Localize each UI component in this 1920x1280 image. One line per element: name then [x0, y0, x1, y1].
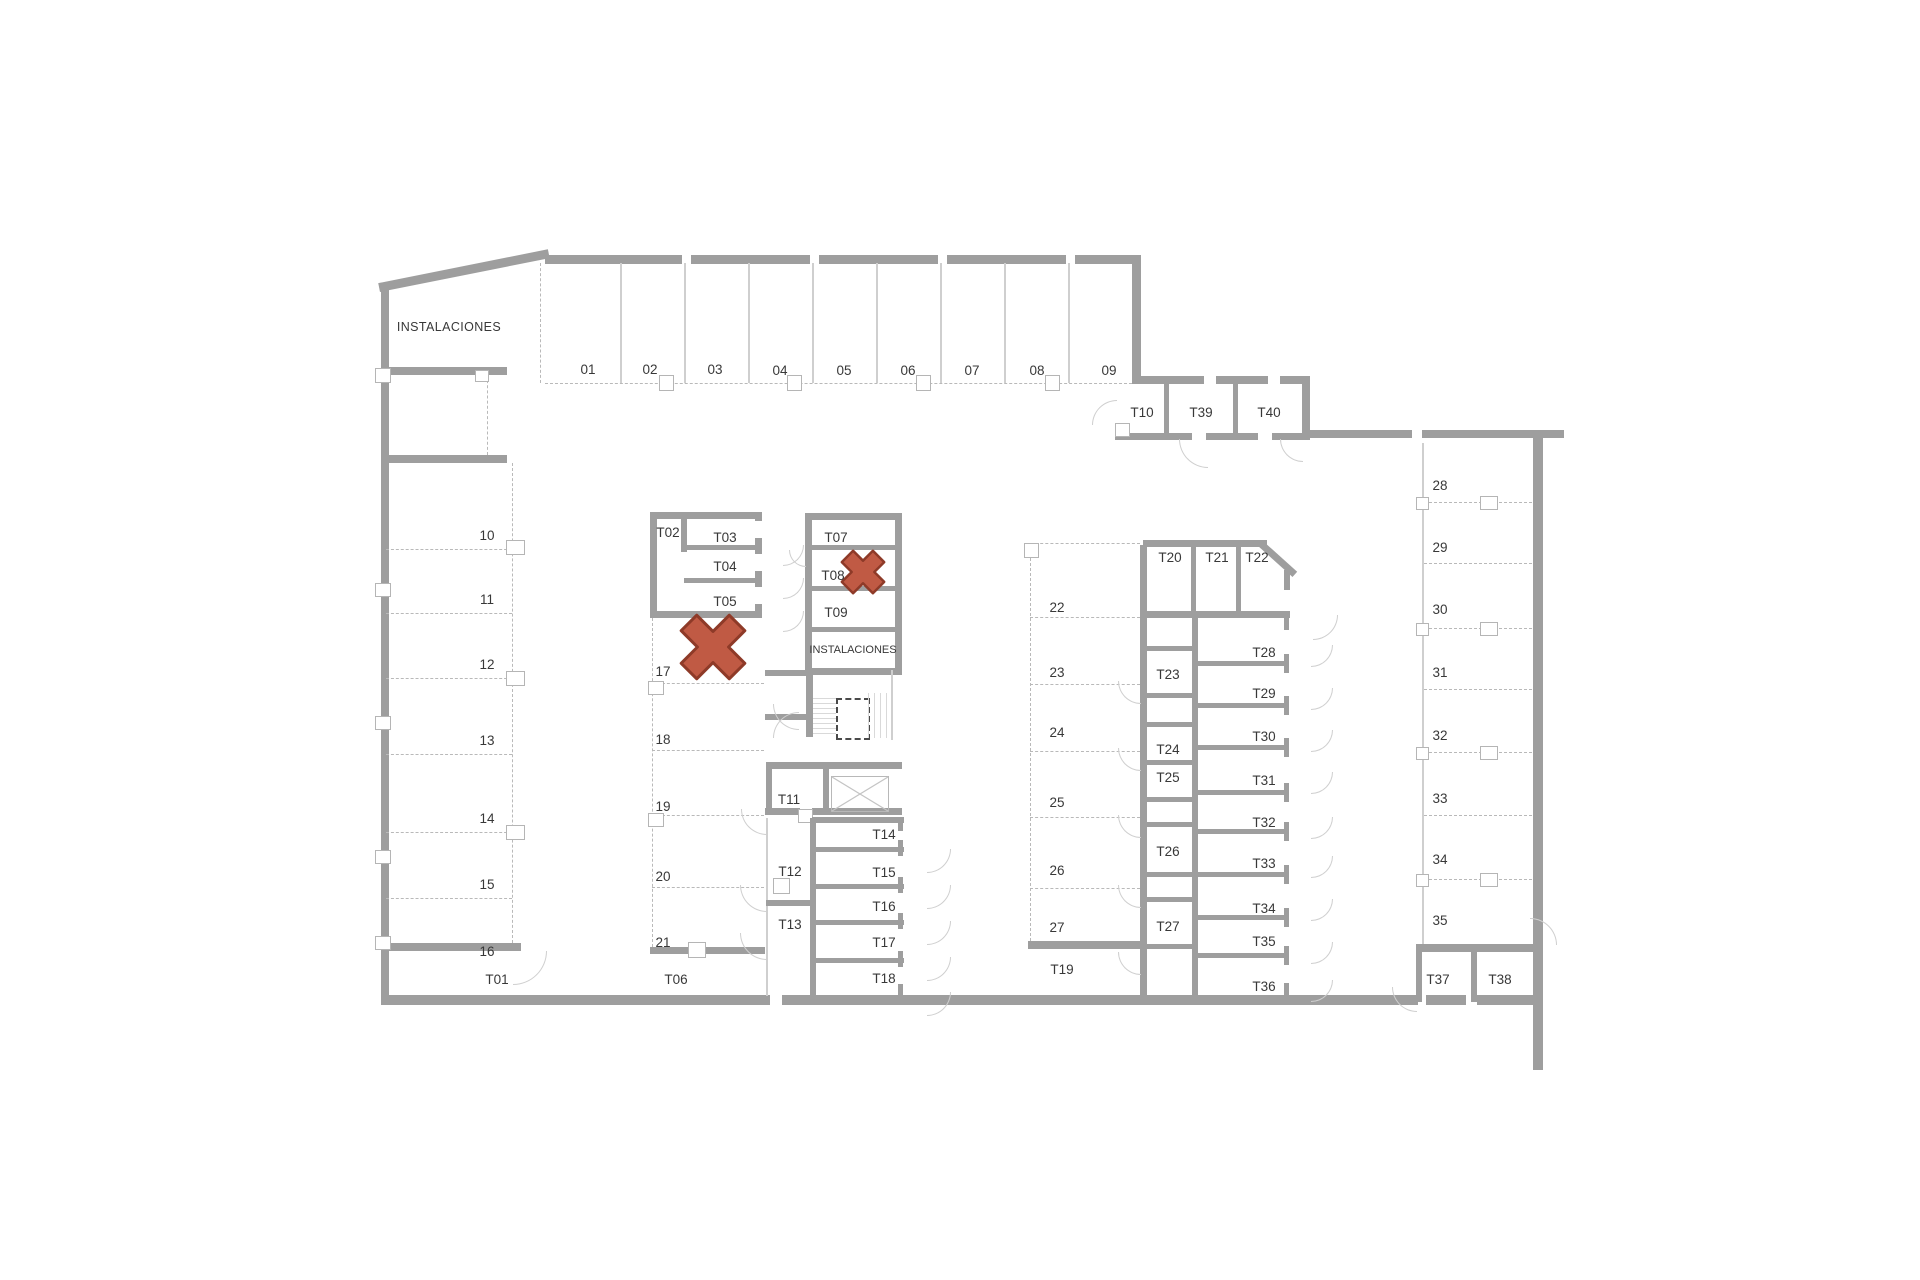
- partition-line: [891, 670, 893, 740]
- space-label-31: 31: [1410, 665, 1470, 681]
- dashed-boundary: [1424, 879, 1532, 880]
- storage-label-T04: T04: [695, 559, 755, 575]
- space-label-10: 10: [457, 528, 517, 544]
- storage-label-T02: T02: [638, 525, 698, 541]
- dashed-boundary: [540, 263, 541, 383]
- wall-segment: [766, 762, 902, 769]
- door-arc: [1179, 439, 1208, 468]
- wall-segment: [816, 958, 904, 963]
- wall-segment: [1028, 941, 1147, 949]
- door-symbol: [648, 813, 664, 827]
- wall-segment: [1143, 540, 1267, 547]
- wall-segment: [1198, 872, 1286, 877]
- wall-segment: [381, 455, 507, 463]
- space-label-04: 04: [750, 363, 810, 379]
- space-label-17: 17: [633, 664, 693, 680]
- space-label-09: 09: [1079, 363, 1139, 379]
- storage-label-T05: T05: [695, 594, 755, 610]
- wall-segment: [766, 900, 814, 906]
- space-label-23: 23: [1027, 665, 1087, 681]
- space-label-30: 30: [1410, 602, 1470, 618]
- storage-label-T14: T14: [854, 827, 914, 843]
- wall-gap: [755, 521, 762, 538]
- door-arc: [740, 885, 767, 912]
- space-label-21: 21: [633, 935, 693, 951]
- storage-label-T17: T17: [854, 935, 914, 951]
- storage-label-T27: T27: [1138, 919, 1198, 935]
- door-arc: [1280, 439, 1303, 462]
- storage-label-T25: T25: [1138, 770, 1198, 786]
- space-label-33: 33: [1410, 791, 1470, 807]
- storage-label-T28: T28: [1234, 645, 1294, 661]
- storage-label-T18: T18: [854, 971, 914, 987]
- door-arc: [1311, 942, 1333, 964]
- space-label-07: 07: [942, 363, 1002, 379]
- staircase-treads: [813, 698, 836, 738]
- space-label-18: 18: [633, 732, 693, 748]
- storage-label-T19: T19: [1032, 962, 1092, 978]
- storage-label-T10: T10: [1112, 405, 1172, 421]
- wall-segment: [1145, 760, 1195, 765]
- dashed-boundary: [386, 613, 512, 614]
- door-arc: [927, 885, 951, 909]
- storage-label-T06: T06: [646, 972, 706, 988]
- wall-segment: [1145, 822, 1195, 827]
- dashed-boundary: [1424, 752, 1532, 753]
- space-label-25: 25: [1027, 795, 1087, 811]
- door-symbol: [1115, 423, 1130, 437]
- wall-segment: [684, 578, 758, 583]
- wall-segment: [1198, 953, 1286, 958]
- door-arc: [927, 992, 951, 1016]
- wall-segment: [1284, 570, 1290, 590]
- floor-plan: INSTALACIONES INSTALACIONES 01 02 03 04 …: [0, 0, 1920, 1280]
- dashed-boundary: [386, 549, 512, 550]
- wall-gap: [755, 587, 762, 604]
- storage-label-T33: T33: [1234, 856, 1294, 872]
- space-label-02: 02: [620, 362, 680, 378]
- wall-segment: [898, 913, 903, 929]
- door-arc: [1311, 688, 1333, 710]
- door-symbol: [506, 671, 525, 686]
- dashed-boundary: [1030, 617, 1140, 618]
- wall-segment: [1145, 897, 1195, 902]
- wall-segment: [1145, 872, 1195, 877]
- elevator-shaft: [831, 776, 889, 812]
- space-label-14: 14: [457, 811, 517, 827]
- storage-label-T07: T07: [806, 530, 866, 546]
- storage-label-T29: T29: [1234, 686, 1294, 702]
- door-symbol: [1480, 746, 1498, 760]
- wall-gap: [770, 994, 782, 1006]
- dashed-boundary: [1030, 543, 1140, 544]
- storage-label-T36: T36: [1234, 979, 1294, 995]
- wall-segment: [381, 288, 389, 1000]
- wall-segment: [765, 670, 812, 676]
- wall-segment: [1198, 790, 1286, 795]
- door-arc: [789, 550, 806, 567]
- space-label-08: 08: [1007, 363, 1067, 379]
- door-symbol: [773, 878, 790, 894]
- space-label-26: 26: [1027, 863, 1087, 879]
- wall-segment: [1233, 383, 1238, 433]
- door-arc: [783, 578, 804, 599]
- storage-label-T35: T35: [1234, 934, 1294, 950]
- wall-gap: [1412, 429, 1422, 439]
- storage-label-T01: T01: [467, 972, 527, 988]
- dashed-boundary: [386, 898, 512, 899]
- dashed-boundary: [652, 750, 764, 751]
- door-arc: [1118, 952, 1141, 975]
- staircase-treads: [868, 693, 898, 738]
- door-arc: [783, 611, 804, 632]
- door-symbol: [1024, 543, 1039, 558]
- wall-segment: [1302, 376, 1310, 438]
- door-arc: [927, 921, 951, 945]
- storage-label-T30: T30: [1234, 729, 1294, 745]
- door-arc: [927, 957, 951, 981]
- dashed-boundary: [386, 832, 512, 833]
- door-arc: [1311, 772, 1333, 794]
- wall-gap: [1268, 375, 1280, 385]
- space-label-06: 06: [878, 363, 938, 379]
- storage-label-T40: T40: [1239, 405, 1299, 421]
- space-label-28: 28: [1410, 478, 1470, 494]
- door-arc: [1311, 645, 1333, 667]
- door-arc: [1118, 681, 1141, 704]
- wall-segment: [1198, 661, 1286, 666]
- space-label-20: 20: [633, 869, 693, 885]
- door-arc: [1118, 885, 1141, 908]
- wall-gap: [1204, 375, 1216, 385]
- storage-label-T24: T24: [1138, 742, 1198, 758]
- storage-label-T16: T16: [854, 899, 914, 915]
- wall-segment: [1145, 722, 1195, 727]
- door-symbol: [375, 850, 391, 864]
- wall-gap: [755, 554, 762, 571]
- door-arc: [1313, 615, 1338, 640]
- wall-segment: [816, 847, 904, 852]
- door-arc: [1118, 815, 1141, 838]
- door-arc: [927, 849, 951, 873]
- dashed-boundary: [487, 375, 488, 455]
- storage-label-T03: T03: [695, 530, 755, 546]
- space-label-03: 03: [685, 362, 745, 378]
- wall-segment: [1140, 611, 1290, 618]
- cross-shape: [665, 599, 761, 695]
- door-symbol: [375, 583, 391, 597]
- door-arc: [1311, 856, 1333, 878]
- wall-segment: [1145, 797, 1195, 802]
- wall-segment: [545, 255, 1140, 264]
- wall-segment: [1145, 944, 1195, 949]
- wall-segment: [810, 818, 816, 996]
- dashed-boundary: [545, 383, 1132, 384]
- storage-label-T08: T08: [803, 568, 863, 584]
- door-arc: [1311, 730, 1333, 752]
- storage-label-T31: T31: [1234, 773, 1294, 789]
- wall-segment: [812, 817, 904, 823]
- storage-label-T39: T39: [1171, 405, 1231, 421]
- door-arc: [1530, 918, 1557, 945]
- storage-label-T34: T34: [1234, 901, 1294, 917]
- dashed-boundary: [1424, 502, 1532, 503]
- space-label-34: 34: [1410, 852, 1470, 868]
- wall-segment: [1198, 745, 1286, 750]
- storage-label-T09: T09: [806, 605, 866, 621]
- wall-segment: [816, 884, 904, 889]
- door-symbol: [1416, 747, 1429, 760]
- door-arc: [1392, 987, 1417, 1012]
- instalaciones-label-top: INSTALACIONES: [393, 319, 505, 335]
- wall-segment: [805, 513, 902, 520]
- partition-line: [1068, 263, 1070, 383]
- space-label-16: 16: [457, 944, 517, 960]
- storage-label-T23: T23: [1138, 667, 1198, 683]
- wall-segment: [1198, 703, 1286, 708]
- wall-segment: [378, 249, 549, 292]
- door-symbol: [506, 825, 525, 840]
- partition-line: [1004, 263, 1006, 383]
- door-symbol: [1416, 623, 1429, 636]
- wall-segment: [806, 670, 813, 737]
- dashed-boundary: [1424, 628, 1532, 629]
- space-label-12: 12: [457, 657, 517, 673]
- door-symbol: [1480, 873, 1498, 887]
- wall-gap: [1258, 432, 1272, 441]
- space-label-01: 01: [558, 362, 618, 378]
- space-label-32: 32: [1410, 728, 1470, 744]
- door-arc: [740, 933, 767, 960]
- wall-segment: [812, 627, 902, 632]
- space-label-11: 11: [457, 592, 517, 608]
- wall-segment: [1145, 693, 1195, 698]
- storage-label-T13: T13: [760, 917, 820, 933]
- storage-label-T22: T22: [1227, 550, 1287, 566]
- door-arc: [1311, 817, 1333, 839]
- staircase-outline: [836, 698, 870, 740]
- wall-segment: [1284, 618, 1289, 630]
- partition-line: [1422, 443, 1424, 947]
- space-label-22: 22: [1027, 600, 1087, 616]
- space-label-24: 24: [1027, 725, 1087, 741]
- space-label-15: 15: [457, 877, 517, 893]
- wall-segment: [1533, 430, 1543, 1070]
- door-symbol: [1416, 497, 1429, 510]
- wall-segment: [1145, 646, 1195, 651]
- storage-label-T38: T38: [1470, 972, 1530, 988]
- dashed-boundary: [652, 683, 764, 684]
- wall-segment: [805, 668, 902, 675]
- dashed-boundary: [386, 678, 512, 679]
- storage-label-T37: T37: [1408, 972, 1468, 988]
- storage-label-T11: T11: [759, 792, 819, 808]
- door-symbol: [375, 368, 391, 383]
- storage-label-T32: T32: [1234, 815, 1294, 831]
- door-arc: [741, 809, 767, 835]
- dashed-boundary: [1424, 689, 1532, 690]
- wall-segment: [381, 995, 1543, 1005]
- door-symbol: [648, 681, 664, 695]
- wall-segment: [1302, 430, 1564, 438]
- wall-segment: [816, 920, 904, 925]
- door-symbol: [1416, 874, 1429, 887]
- dashed-boundary: [1424, 815, 1532, 816]
- wall-segment: [1132, 376, 1310, 384]
- space-label-29: 29: [1410, 540, 1470, 556]
- space-label-13: 13: [457, 733, 517, 749]
- door-symbol: [475, 370, 489, 382]
- door-symbol: [1480, 622, 1498, 636]
- storage-label-T15: T15: [854, 865, 914, 881]
- dashed-boundary: [386, 754, 512, 755]
- space-label-05: 05: [814, 363, 874, 379]
- space-label-19: 19: [633, 799, 693, 815]
- door-symbol: [375, 716, 391, 730]
- elevator-x-icon: [832, 777, 888, 811]
- space-label-27: 27: [1027, 920, 1087, 936]
- door-symbol: [375, 936, 391, 950]
- space-label-35: 35: [1410, 913, 1470, 929]
- storage-label-T26: T26: [1138, 844, 1198, 860]
- door-symbol: [1480, 496, 1498, 510]
- wall-segment: [898, 951, 903, 967]
- wall-segment: [650, 512, 762, 519]
- storage-label-T12: T12: [760, 864, 820, 880]
- dashed-boundary: [1424, 563, 1532, 564]
- door-arc: [1311, 899, 1333, 921]
- instalaciones-label-mid: INSTALACIONES: [807, 643, 899, 657]
